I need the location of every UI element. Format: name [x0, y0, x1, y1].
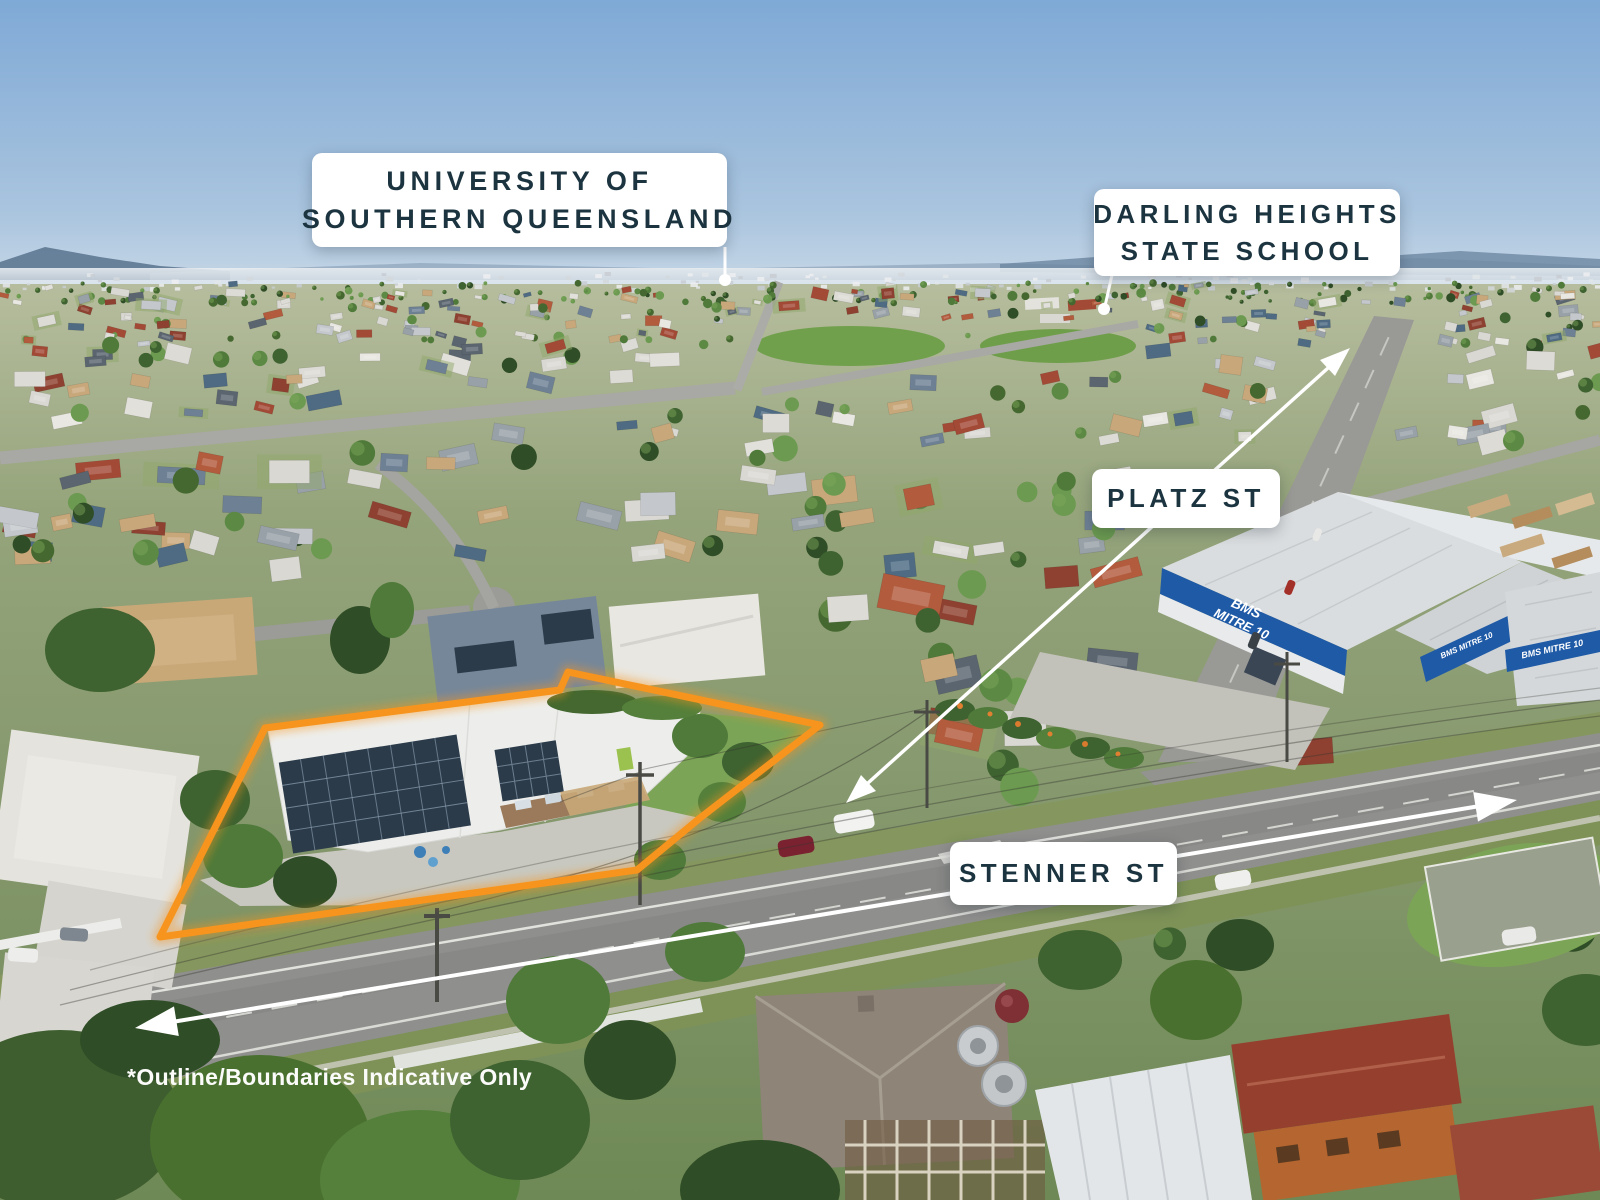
tree-highlight	[17, 294, 19, 296]
tree-highlight	[359, 293, 362, 296]
house	[716, 509, 759, 534]
tree-highlight	[350, 296, 352, 298]
house-roof	[1266, 313, 1277, 319]
house	[374, 304, 383, 310]
tree-highlight	[101, 282, 104, 285]
house	[631, 543, 666, 562]
distant-building	[1007, 287, 1012, 290]
tree	[1111, 292, 1118, 299]
house-roof	[754, 300, 761, 305]
house	[721, 301, 736, 310]
tree	[1195, 316, 1206, 327]
tree-highlight	[261, 285, 265, 289]
tree-highlight	[1241, 290, 1244, 293]
house-roof	[203, 373, 227, 388]
tree	[699, 340, 708, 349]
house	[616, 420, 637, 430]
tree	[1446, 293, 1455, 302]
house	[569, 293, 578, 299]
tree-highlight	[337, 292, 342, 297]
tree-highlight	[1240, 300, 1242, 302]
roof-ridge	[739, 310, 747, 314]
tree	[1357, 287, 1361, 291]
tree-highlight	[351, 442, 365, 456]
tree-highlight	[1461, 291, 1463, 293]
house	[157, 320, 170, 329]
house	[1570, 313, 1581, 321]
distant-building	[757, 277, 764, 281]
tree-highlight	[121, 298, 124, 301]
tree-highlight	[484, 282, 486, 284]
house	[1526, 351, 1555, 371]
house	[877, 285, 899, 303]
distant-building	[605, 272, 611, 276]
distant-building	[1188, 278, 1192, 280]
house	[1447, 374, 1463, 384]
house-roof	[616, 420, 637, 430]
distant-building	[702, 273, 709, 277]
house-roof	[24, 337, 34, 344]
label-usq-line1: UNIVERSITY OF	[386, 162, 652, 200]
house-roof	[222, 495, 261, 513]
house-roof	[851, 289, 858, 294]
tree-highlight	[1110, 372, 1117, 379]
tree-highlight	[920, 282, 924, 286]
tree	[645, 336, 652, 343]
distant-building	[729, 273, 735, 277]
distant-building	[1511, 276, 1516, 279]
distant-building	[499, 276, 504, 279]
tree	[458, 282, 466, 290]
tree-highlight	[482, 294, 485, 297]
house	[902, 306, 920, 317]
house	[1251, 309, 1266, 317]
house	[447, 306, 460, 311]
tree-highlight	[1076, 428, 1082, 434]
tree	[476, 327, 487, 338]
distant-building	[1213, 276, 1219, 280]
house	[1044, 565, 1079, 589]
house	[1316, 320, 1330, 329]
house	[380, 453, 408, 472]
distant-building	[3, 283, 10, 287]
tree-highlight	[955, 301, 957, 303]
house-roof	[1145, 343, 1171, 359]
tree-highlight	[538, 291, 541, 294]
house	[1198, 337, 1208, 344]
tree-highlight	[726, 336, 730, 340]
tree	[102, 337, 119, 354]
tree-highlight	[74, 504, 85, 515]
tree	[1000, 768, 1039, 807]
tree-highlight	[711, 291, 714, 294]
house-roof	[105, 299, 116, 305]
tree-highlight	[871, 298, 873, 300]
house	[32, 345, 48, 357]
house	[360, 353, 381, 361]
house	[851, 289, 858, 294]
distant-building	[272, 287, 275, 289]
tree	[1530, 292, 1540, 302]
distant-building	[1591, 283, 1594, 285]
tree-highlight	[345, 287, 349, 291]
tree-highlight	[69, 289, 71, 291]
tree-highlight	[723, 293, 726, 296]
tree	[1545, 312, 1551, 318]
distant-building	[1248, 277, 1252, 280]
house-roof	[1198, 337, 1208, 344]
distant-building	[382, 273, 387, 276]
distant-building	[738, 276, 742, 279]
tree	[1250, 383, 1266, 399]
tree-highlight	[1074, 289, 1077, 292]
house	[134, 323, 145, 330]
house-roof	[411, 327, 430, 335]
distant-building	[595, 274, 602, 278]
roof-ridge	[1594, 323, 1600, 326]
house-roof	[269, 460, 309, 483]
distant-building	[1514, 285, 1522, 290]
tree	[1469, 286, 1472, 289]
tree-highlight	[1017, 284, 1019, 286]
house-roof	[141, 300, 161, 310]
house	[228, 281, 237, 287]
distant-building	[1534, 277, 1542, 282]
tree-highlight	[1269, 299, 1271, 301]
house	[426, 457, 455, 470]
distant-building	[1033, 278, 1038, 281]
tree	[421, 336, 427, 342]
tree-highlight	[584, 289, 586, 291]
tree	[241, 299, 248, 306]
distant-building	[1583, 272, 1589, 276]
distant-building	[1589, 279, 1593, 281]
house	[257, 454, 322, 489]
distant-building	[1556, 275, 1561, 278]
house	[422, 290, 432, 296]
tree-highlight	[1150, 280, 1154, 284]
tree	[1121, 293, 1128, 300]
tree-highlight	[807, 538, 819, 550]
pergola-frame	[845, 1120, 1045, 1200]
tree-highlight	[714, 316, 717, 319]
house	[1168, 332, 1185, 344]
house-roof	[226, 289, 245, 297]
house-roof	[356, 330, 371, 338]
tree	[1057, 472, 1076, 491]
tree-highlight	[712, 303, 718, 309]
distant-building	[98, 280, 102, 283]
distant-building	[247, 277, 253, 281]
tree	[620, 335, 628, 343]
distant-building	[1046, 279, 1051, 282]
house	[1361, 300, 1370, 304]
tree	[1017, 482, 1038, 503]
tree	[772, 435, 798, 461]
distant-building	[1390, 287, 1396, 291]
house-roof	[1570, 313, 1581, 321]
house	[763, 414, 790, 433]
tree	[990, 385, 1005, 400]
tree-highlight	[253, 352, 261, 360]
house	[530, 304, 539, 311]
tree-highlight	[1527, 339, 1536, 348]
house	[105, 299, 116, 305]
tree	[272, 348, 287, 363]
tree	[250, 294, 254, 298]
distant-building	[1269, 282, 1274, 285]
tree-highlight	[1426, 293, 1430, 297]
house	[565, 320, 576, 329]
distant-building	[666, 276, 670, 278]
distant-building	[898, 273, 904, 277]
distant-building	[757, 286, 764, 291]
tree-highlight	[134, 541, 148, 555]
house-roof	[1219, 354, 1243, 375]
roof-ridge	[364, 356, 376, 359]
house	[85, 356, 107, 368]
tree-highlight	[668, 409, 676, 417]
tree	[1558, 282, 1565, 289]
distant-building	[903, 286, 909, 290]
house	[474, 295, 481, 299]
roof-ridge	[915, 379, 931, 386]
tree-highlight	[1423, 297, 1425, 299]
tree-highlight	[1322, 282, 1324, 284]
distant-building	[999, 284, 1004, 287]
tree	[216, 295, 227, 306]
house-roof	[286, 374, 302, 383]
distant-building	[1301, 277, 1309, 282]
distant-building	[966, 283, 970, 286]
distant-building	[1241, 279, 1247, 283]
tree	[1236, 315, 1247, 326]
label-usq-line2: SOUTHERN QUEENSLAND	[302, 200, 737, 238]
house	[1560, 293, 1574, 300]
house-roof	[1043, 303, 1051, 309]
tree	[682, 299, 689, 306]
house	[772, 298, 806, 314]
distant-building	[892, 279, 895, 281]
tree	[1008, 308, 1019, 319]
tree	[1206, 282, 1212, 288]
tree-highlight	[154, 317, 158, 321]
tree-highlight	[1452, 281, 1455, 284]
tree	[511, 444, 537, 470]
label-platz-text: PLATZ ST	[1107, 480, 1265, 517]
distant-building	[1081, 275, 1086, 278]
house-roof	[987, 308, 1001, 317]
house-roof	[134, 323, 145, 330]
house	[1041, 301, 1053, 309]
usq-pointer-dot	[719, 274, 731, 286]
house-roof	[638, 330, 646, 336]
tree	[139, 353, 154, 368]
tree-highlight	[1130, 283, 1134, 287]
distant-building	[1445, 278, 1451, 282]
distant-building	[935, 282, 939, 285]
roof-ridge	[386, 459, 403, 467]
tree	[1389, 301, 1393, 305]
distant-building	[1595, 285, 1600, 288]
tree	[1318, 292, 1322, 296]
distant-building	[1365, 282, 1373, 287]
tree-highlight	[1580, 286, 1584, 290]
house	[356, 330, 371, 338]
house	[135, 298, 167, 313]
distant-building	[474, 284, 482, 289]
tree	[1021, 292, 1029, 300]
tree-highlight	[764, 295, 769, 300]
tree	[818, 551, 843, 576]
house	[1089, 377, 1107, 387]
house	[1222, 316, 1236, 323]
distant-building	[114, 277, 120, 281]
distant-building	[821, 285, 827, 289]
label-platz-st: PLATZ ST	[1092, 469, 1280, 528]
tree	[1428, 287, 1431, 290]
house-roof	[1089, 377, 1107, 387]
house	[1592, 321, 1600, 328]
boundaries-disclaimer: *Outline/Boundaries Indicative Only	[127, 1064, 532, 1091]
tree	[1136, 288, 1146, 298]
house	[1063, 315, 1074, 321]
distant-building	[386, 277, 394, 282]
house	[222, 495, 261, 513]
distant-building	[566, 277, 571, 280]
tree	[1255, 282, 1261, 288]
house	[650, 352, 680, 367]
tree	[1264, 290, 1268, 294]
tree	[1052, 383, 1069, 400]
tree	[98, 297, 106, 305]
house	[1447, 425, 1468, 440]
tree	[1575, 405, 1590, 420]
tree	[502, 358, 517, 373]
solar-panels-right	[494, 740, 563, 801]
tree	[427, 336, 434, 343]
house-roof	[1306, 326, 1316, 332]
tree	[1393, 282, 1397, 286]
tree-highlight	[1579, 379, 1587, 387]
distant-building	[27, 283, 30, 285]
label-university-of-southern-queensland: UNIVERSITY OF SOUTHERN QUEENSLAND	[312, 153, 727, 247]
roof-ridge	[466, 347, 479, 352]
house	[1394, 297, 1406, 307]
tree-highlight	[35, 288, 38, 291]
house	[14, 371, 45, 386]
house-roof	[1184, 284, 1189, 287]
house-roof	[1063, 315, 1074, 321]
tree	[1210, 336, 1217, 343]
tree	[5, 288, 11, 294]
tree	[311, 538, 332, 559]
tree-highlight	[1309, 300, 1313, 304]
distant-building	[1230, 278, 1238, 283]
house	[827, 594, 869, 622]
tree-highlight	[154, 288, 158, 292]
tree-highlight	[32, 541, 45, 554]
house-roof	[1560, 293, 1574, 300]
distant-building	[1148, 287, 1151, 289]
house-roof	[157, 320, 170, 329]
tree-highlight	[770, 282, 774, 286]
label-stenner-text: STENNER ST	[959, 855, 1168, 892]
tree-highlight	[1154, 324, 1160, 330]
distant-building	[815, 278, 819, 280]
house	[1184, 284, 1189, 287]
house-roof	[565, 320, 576, 329]
tree-highlight	[1504, 432, 1516, 444]
tree-highlight	[1573, 320, 1579, 326]
distant-building	[175, 287, 180, 290]
roof-ridge	[1241, 435, 1249, 439]
tree-highlight	[272, 332, 277, 337]
house	[1266, 313, 1277, 319]
tree-highlight	[277, 291, 281, 295]
house	[226, 289, 245, 297]
roof-ridge	[623, 315, 629, 317]
house-roof	[1222, 316, 1236, 323]
distant-building	[885, 277, 892, 281]
house	[462, 343, 483, 355]
tree-highlight	[1546, 286, 1549, 289]
tree-highlight	[1053, 494, 1066, 507]
house	[68, 323, 84, 331]
tree	[407, 315, 417, 325]
distant-building	[297, 284, 302, 287]
tree	[1328, 283, 1333, 288]
tree-highlight	[214, 352, 223, 361]
house-roof	[640, 492, 676, 516]
tree-highlight	[1194, 289, 1197, 292]
tree-highlight	[767, 288, 771, 292]
distant-building	[1388, 281, 1394, 285]
distant-building	[395, 283, 398, 285]
tree	[703, 299, 712, 308]
tree-highlight	[571, 299, 574, 302]
tree	[948, 297, 956, 305]
house	[216, 389, 238, 406]
tree-highlight	[320, 297, 322, 299]
foreground-house-right	[1231, 1014, 1471, 1200]
house	[409, 306, 425, 314]
house-roof	[169, 319, 187, 329]
house-roof	[228, 281, 237, 287]
tree	[173, 467, 199, 493]
tree-highlight	[561, 296, 564, 299]
tree-highlight	[1155, 929, 1173, 947]
tree	[227, 335, 233, 341]
tree-highlight	[1134, 284, 1136, 286]
house	[286, 374, 302, 383]
tree	[634, 288, 640, 294]
distant-building	[159, 284, 164, 287]
tree	[785, 397, 799, 411]
tree-highlight	[286, 295, 288, 297]
distant-building	[1507, 288, 1515, 293]
house	[910, 374, 937, 390]
label-school-line2: STATE SCHOOL	[1121, 233, 1374, 270]
house-roof	[1044, 565, 1079, 589]
distant-building	[956, 283, 964, 288]
tree	[1007, 291, 1017, 301]
house-roof	[1526, 351, 1555, 371]
house	[203, 373, 227, 388]
tree	[958, 570, 987, 599]
tree	[1435, 292, 1442, 299]
distant-building	[696, 281, 699, 283]
